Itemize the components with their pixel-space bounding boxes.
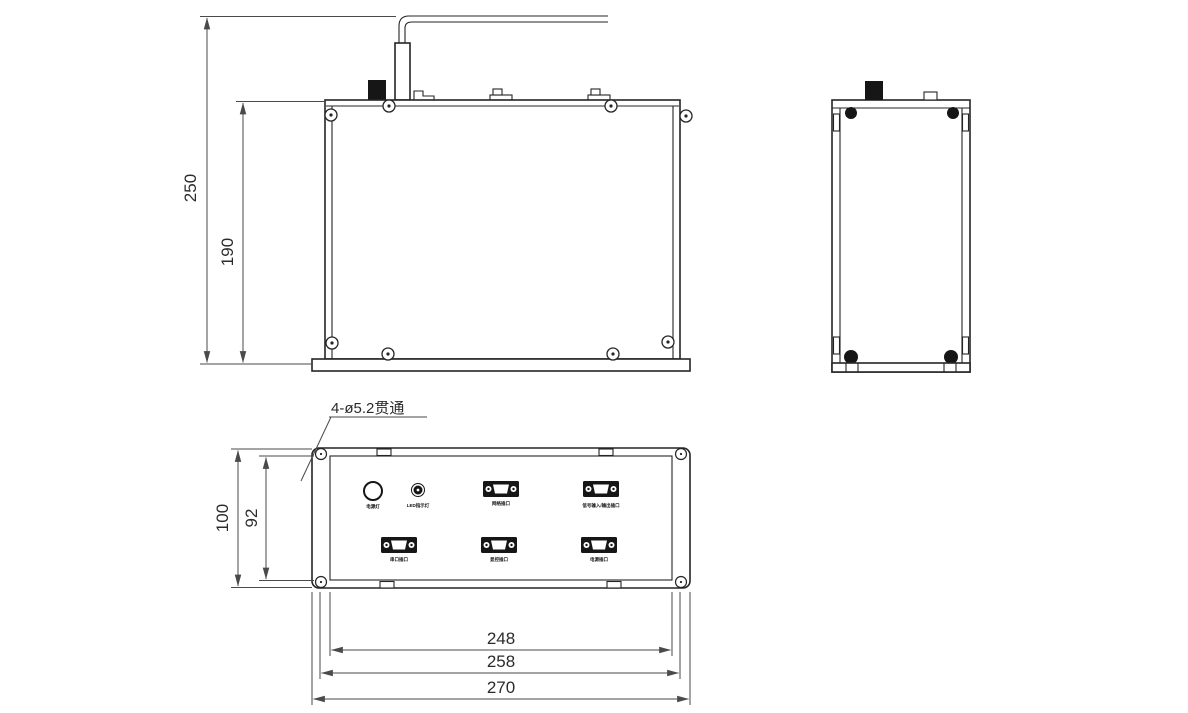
drawing-canvas: 250 190 — [0, 0, 1188, 713]
cable-inner — [405, 22, 608, 44]
dsub-connector-5-label: 电源插口 — [590, 556, 608, 563]
dim-92-label: 92 — [242, 509, 261, 528]
side-slot-top-left — [834, 114, 840, 131]
dim-270-label: 270 — [487, 678, 515, 697]
dsub-connector-2-label: 信号输入/输出插口 — [582, 502, 620, 509]
side-top-screw-left — [845, 107, 857, 119]
technical-drawing: 250 190 — [0, 0, 1188, 713]
dim-258-label: 258 — [487, 652, 515, 671]
dim-270: 270 — [312, 592, 690, 705]
side-foot-left — [844, 350, 858, 364]
top-clip-3 — [588, 89, 610, 100]
front-view: 250 190 — [181, 16, 692, 371]
side-black-connector — [865, 81, 883, 100]
power-indicator-label: 电源灯 — [366, 503, 380, 510]
dsub-connector-3-label: 串口插口 — [390, 556, 408, 563]
dim-190-label: 190 — [218, 238, 237, 266]
dim-190: 190 — [218, 102, 325, 363]
side-slot-bottom-right — [963, 337, 969, 354]
side-top-tab — [924, 92, 937, 100]
side-enclosure — [832, 100, 970, 372]
side-slot-top-right — [963, 114, 969, 131]
front-enclosure — [325, 100, 680, 359]
dim-250-label: 250 — [181, 174, 200, 202]
side-slot-bottom-left — [834, 337, 840, 354]
side-base-plate — [832, 363, 970, 372]
side-view — [832, 81, 970, 372]
side-foot-right — [944, 350, 958, 364]
dsub-connector-1-label: 网络插口 — [492, 500, 510, 507]
bottom-view: 电源灯 LED指示灯 网络插口 信号输入/输出插口 — [213, 400, 690, 705]
dim-100: 100 — [213, 449, 312, 588]
dim-248-label: 248 — [487, 629, 515, 648]
hole-callout-label: 4-ø5.2贯通 — [331, 400, 404, 417]
led-indicator-label: LED指示灯 — [407, 502, 430, 509]
dim-92: 92 — [242, 456, 314, 581]
front-base-plate — [312, 359, 690, 371]
top-clip-2 — [490, 89, 512, 100]
dsub-connector-2: 信号输入/输出插口 — [582, 481, 620, 509]
cable — [399, 16, 608, 44]
fiber-connector — [395, 43, 410, 100]
side-top-screw-right — [947, 107, 959, 119]
top-clip-1 — [414, 91, 434, 100]
top-black-block — [368, 80, 386, 100]
dim-248: 248 — [330, 592, 672, 656]
power-indicator: 电源灯 — [364, 482, 382, 510]
dim-100-label: 100 — [213, 504, 232, 532]
dsub-connector-4-label: 显控插口 — [490, 556, 508, 563]
